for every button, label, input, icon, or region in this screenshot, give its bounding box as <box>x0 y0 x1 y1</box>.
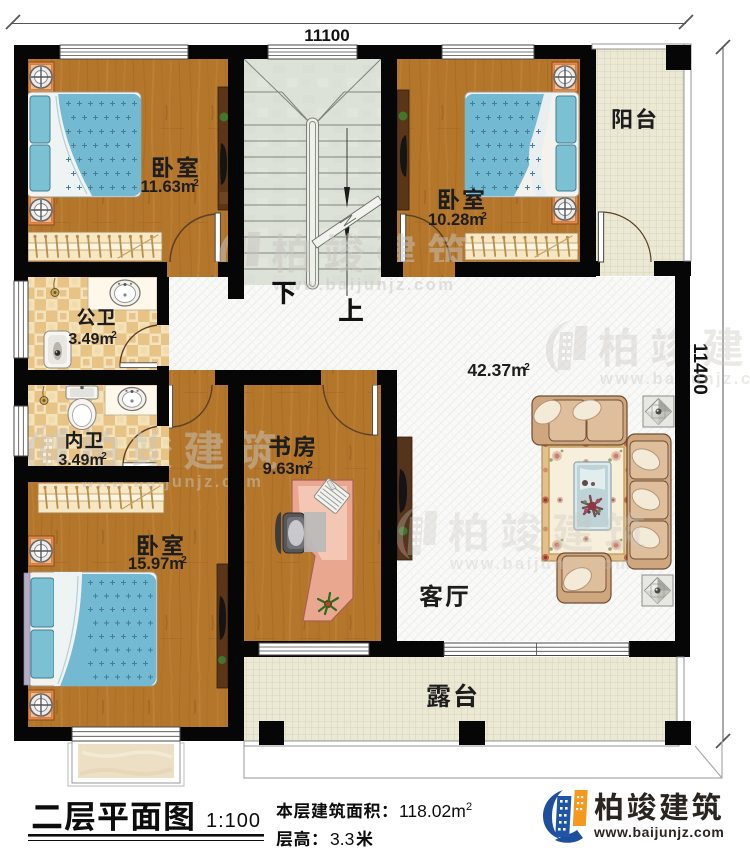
svg-text:11.63m: 11.63m <box>140 178 195 196</box>
svg-text:3.49m: 3.49m <box>68 331 113 348</box>
svg-text:42.37m: 42.37m <box>467 360 526 380</box>
svg-text:www.baijunjz.com: www.baijunjz.com <box>593 824 724 840</box>
svg-text:3.49m: 3.49m <box>58 452 103 469</box>
svg-text:2: 2 <box>101 451 107 462</box>
svg-text:10.28m: 10.28m <box>428 211 484 229</box>
svg-text:2: 2 <box>181 555 187 566</box>
svg-text:2: 2 <box>481 211 487 222</box>
svg-text:www.baijunjz.com: www.baijunjz.com <box>272 276 455 294</box>
svg-text:2: 2 <box>307 460 313 471</box>
svg-text:15.97m: 15.97m <box>128 555 184 573</box>
svg-text:3.3: 3.3 <box>330 829 354 849</box>
svg-text:1:100: 1:100 <box>206 810 261 832</box>
svg-text:2: 2 <box>466 801 472 813</box>
svg-text:118.02m: 118.02m <box>399 801 466 821</box>
svg-text:2: 2 <box>111 330 117 341</box>
svg-text:www.baijunjz.com: www.baijunjz.com <box>449 555 632 573</box>
svg-text:2: 2 <box>193 178 199 189</box>
svg-text:www.baijunjz.com: www.baijunjz.com <box>599 370 750 388</box>
svg-text:11100: 11100 <box>304 26 349 45</box>
svg-text:2: 2 <box>524 362 530 373</box>
svg-text:9.63m: 9.63m <box>263 460 310 478</box>
